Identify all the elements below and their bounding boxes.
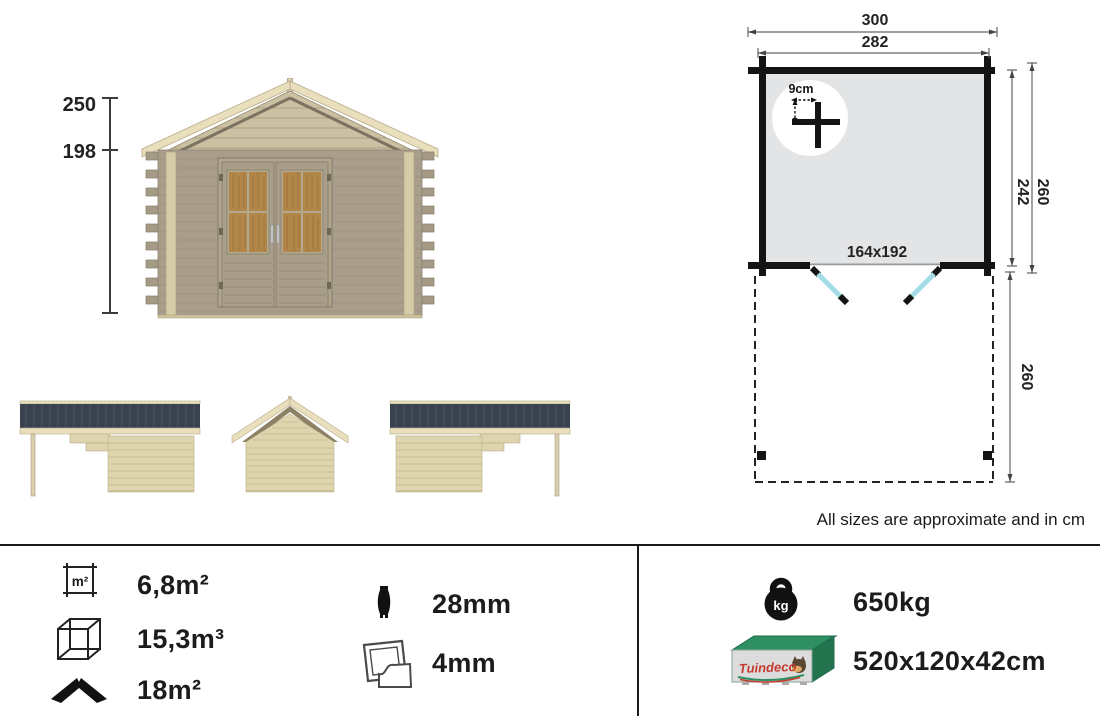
double-doors [218, 158, 332, 307]
front-elevation-drawing [140, 78, 440, 323]
wall-profile-icon [376, 586, 392, 618]
roof-area-icon [49, 674, 109, 706]
back-view-drawing [230, 396, 350, 498]
log-ends-right [422, 152, 434, 304]
side-view-left-drawing [12, 398, 207, 503]
spec-sheet: 250 198 [0, 0, 1100, 716]
svg-text:300: 300 [862, 12, 889, 29]
terrace-post-right [983, 451, 992, 460]
foundation-strip [158, 315, 422, 318]
door-opening-label: 164x192 [847, 244, 907, 261]
volume-value: 15,3m³ [137, 626, 224, 653]
floor-area-icon: m² [61, 561, 99, 599]
package-box: Tuindeco [732, 636, 836, 685]
dim-outer-width: 282 [758, 34, 989, 58]
terrace-post-left [757, 451, 766, 460]
door-window-right [281, 170, 323, 254]
height-ruler [50, 90, 120, 320]
volume-icon [54, 615, 104, 663]
side-left [20, 401, 200, 496]
svg-text:kg: kg [773, 598, 788, 613]
log-ends-left [146, 152, 158, 304]
vertical-divider [637, 545, 639, 716]
door-swing-left [812, 268, 847, 303]
door-swing-right [905, 268, 940, 303]
weight-icon: kg [762, 576, 800, 622]
terrace-outline [755, 276, 993, 482]
svg-text:260: 260 [1018, 364, 1035, 391]
log-detail-callout: 9cm [772, 80, 848, 156]
glazing-value: 4mm [432, 650, 496, 677]
dim-inner-depth: 242 [1007, 70, 1031, 266]
package-icon: Tuindeco [728, 632, 840, 688]
log-detail-label: 9cm [788, 82, 813, 96]
sizes-note: All sizes are approximate and in cm [585, 510, 1085, 530]
roof [142, 78, 438, 157]
svg-text:m²: m² [72, 574, 89, 589]
wall-thickness-value: 28mm [432, 591, 511, 618]
door-window-left [227, 170, 269, 254]
svg-text:282: 282 [862, 34, 889, 51]
horizontal-divider [0, 544, 1100, 546]
brand-label: Tuindeco [739, 659, 797, 676]
floor-area-value: 6,8m² [137, 572, 209, 599]
dim-outer-depth: 260 [1027, 63, 1051, 273]
side-view-right-drawing [383, 398, 578, 503]
back-gable [232, 396, 348, 492]
total-height-label: 250 [52, 95, 96, 115]
side-right [390, 401, 570, 496]
glazing-icon [360, 638, 414, 690]
svg-text:242: 242 [1014, 179, 1031, 206]
weight-value: 650kg [853, 589, 931, 616]
dim-terrace-depth: 260 [1005, 272, 1035, 482]
roof-area-value: 18m² [137, 677, 201, 704]
svg-text:260: 260 [1034, 179, 1051, 206]
floor-plan-drawing: 9cm 164x192 300 282 242 [735, 5, 1070, 535]
wall-height-label: 198 [52, 142, 96, 162]
package-size-value: 520x120x42cm [853, 648, 1046, 675]
